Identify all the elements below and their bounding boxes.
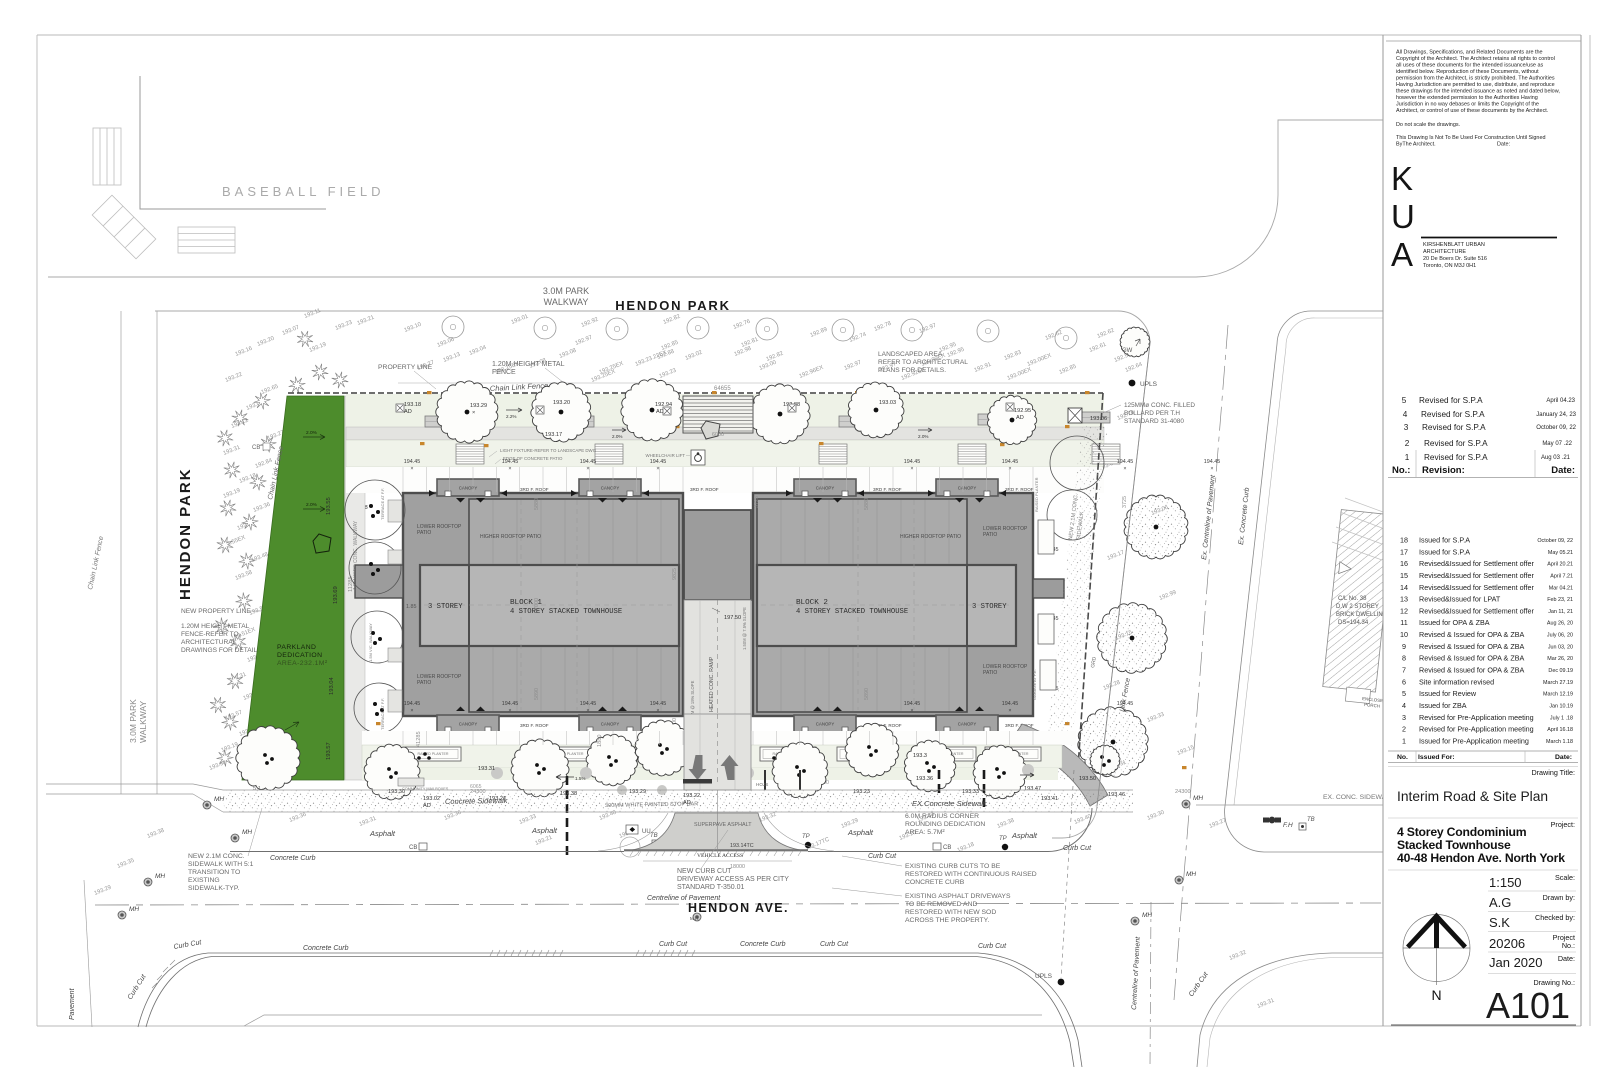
svg-text:RESTORED WITH NEW SOD: RESTORED WITH NEW SOD [905, 909, 996, 916]
svg-text:Scale:: Scale: [1555, 873, 1575, 882]
svg-text:No.:: No.: [1562, 941, 1575, 950]
svg-text:194.45: 194.45 [1204, 459, 1221, 465]
svg-text:×: × [910, 466, 913, 472]
svg-text:Dec 09.19: Dec 09.19 [1548, 668, 1573, 674]
svg-text:193.57: 193.57 [326, 742, 332, 760]
svg-text:×: × [1210, 466, 1213, 472]
svg-text:Curb Cut: Curb Cut [820, 941, 849, 948]
svg-text:6: 6 [1402, 677, 1406, 686]
svg-text:6.0M RADIUS CORNER: 6.0M RADIUS CORNER [905, 813, 979, 820]
svg-text:193.18: 193.18 [404, 402, 421, 408]
svg-text:S.K: S.K [1489, 915, 1510, 930]
svg-text:ACROSS THE PROPERTY.: ACROSS THE PROPERTY. [905, 917, 989, 924]
svg-text:4: 4 [1402, 701, 1406, 710]
svg-text:Project:: Project: [1551, 820, 1575, 829]
svg-text:DRAWINGS FOR DETAIL: DRAWINGS FOR DETAIL [181, 647, 258, 654]
svg-text:NEW PROPERTY LINE: NEW PROPERTY LINE [181, 608, 251, 615]
svg-text:April 16.18: April 16.18 [1547, 727, 1573, 733]
svg-text:5890: 5890 [534, 688, 540, 700]
svg-text:SUPERPAVE ASPHALT: SUPERPAVE ASPHALT [694, 822, 752, 828]
svg-text:3RD F. ROOF: 3RD F. ROOF [690, 487, 719, 492]
svg-text:14: 14 [1400, 583, 1408, 592]
svg-text:HOJS: HOJS [756, 782, 768, 787]
svg-text:Revised for S.P.A: Revised for S.P.A [1419, 396, 1483, 405]
svg-text:193.55: 193.55 [326, 497, 332, 515]
svg-text:SIDEWALK WITH 5:1: SIDEWALK WITH 5:1 [188, 861, 254, 868]
svg-text:Mar 26, 20: Mar 26, 20 [1547, 656, 1573, 662]
svg-text:Revised for Pre-Application me: Revised for Pre-Application meeting [1419, 713, 1534, 722]
svg-text:193.29: 193.29 [470, 403, 487, 409]
svg-text:Having Jurisdiction are permit: Having Jurisdiction are permitted to use… [1396, 82, 1555, 88]
svg-text:MH: MH [1193, 795, 1203, 802]
svg-text:8: 8 [1402, 654, 1406, 663]
svg-text:×: × [1008, 466, 1011, 472]
svg-text:16: 16 [1400, 559, 1408, 568]
svg-text:Mar 04.21: Mar 04.21 [1549, 585, 1573, 591]
svg-text:1:150: 1:150 [1489, 875, 1522, 890]
svg-text:CB: CB [252, 445, 260, 451]
svg-text:194.45: 194.45 [1002, 459, 1019, 465]
svg-text:CANOPY: CANOPY [958, 722, 977, 727]
svg-text:193.04: 193.04 [329, 676, 335, 695]
svg-text:1.5M VIC. WALKWAY: 1.5M VIC. WALKWAY [368, 623, 373, 662]
svg-text:3: 3 [1404, 423, 1409, 432]
svg-text:2.0%: 2.0% [918, 434, 928, 439]
svg-text:BLOCK 2: BLOCK 2 [796, 599, 828, 607]
svg-text:ROUNDING DEDICATION: ROUNDING DEDICATION [905, 821, 985, 828]
svg-text:3RD F. ROOF: 3RD F. ROOF [520, 487, 549, 492]
svg-text:UPLS: UPLS [1140, 381, 1158, 388]
svg-text:F.H: F.H [1283, 822, 1293, 829]
svg-text:194.45: 194.45 [404, 459, 421, 465]
svg-text:PATIO: PATIO [417, 530, 431, 536]
svg-text:all uses of these documents fo: all uses of these documents for the inte… [1396, 63, 1543, 69]
svg-text:May 05.21: May 05.21 [1548, 550, 1573, 556]
svg-text:Revised&Issued for Settlement: Revised&Issued for Settlement offer [1419, 571, 1535, 580]
svg-text:Jan 10.19: Jan 10.19 [1549, 704, 1573, 710]
svg-text:Revised for S.P.A: Revised for S.P.A [1424, 453, 1488, 462]
svg-text:×: × [410, 466, 413, 472]
svg-text:194.45: 194.45 [502, 701, 519, 707]
svg-text:17: 17 [1400, 547, 1408, 556]
svg-text:A101: A101 [1486, 985, 1570, 1026]
svg-text:1.85: 1.85 [406, 604, 417, 610]
svg-text:MH: MH [242, 829, 252, 836]
svg-text:PATIO: PATIO [983, 670, 997, 676]
svg-text:RAISED PLANTER: RAISED PLANTER [1034, 477, 1039, 512]
svg-text:however the extended permissio: however the extended permission to the A… [1396, 95, 1538, 101]
svg-text:3RD F. ROOF: 3RD F. ROOF [873, 487, 902, 492]
svg-text:3 STOREY: 3 STOREY [428, 603, 463, 611]
svg-text:TERRACE AT F.F.: TERRACE AT F.F. [380, 488, 385, 520]
svg-text:Issued for OPA & ZBA: Issued for OPA & ZBA [1419, 618, 1490, 627]
svg-text:Asphalt: Asphalt [847, 828, 874, 837]
svg-text:HENDON PARK: HENDON PARK [177, 467, 194, 600]
svg-text:FENCE-REFER TO: FENCE-REFER TO [181, 631, 239, 638]
svg-text:PATIO: PATIO [417, 680, 431, 686]
svg-text:MH: MH [129, 906, 139, 913]
svg-text:Asphalt: Asphalt [1011, 831, 1038, 840]
svg-text:Jurisdiction in no way debases: Jurisdiction in no way debases or limits… [1396, 102, 1539, 108]
svg-text:41285: 41285 [416, 731, 422, 747]
svg-text:Revised for Pre-Application me: Revised for Pre-Application meeting [1419, 725, 1534, 734]
svg-text:3: 3 [1402, 713, 1406, 722]
svg-text:REFER TO ARCHITECTURAL: REFER TO ARCHITECTURAL [878, 359, 968, 366]
svg-text:EXISTING: EXISTING [188, 877, 220, 884]
svg-text:194.45: 194.45 [650, 701, 667, 707]
svg-text:Jan 2020: Jan 2020 [1489, 955, 1543, 970]
svg-text:Drawing Title:: Drawing Title: [1531, 768, 1575, 777]
svg-text:20206: 20206 [1489, 936, 1525, 951]
svg-text:SIDEWALK-TYP.: SIDEWALK-TYP. [188, 885, 239, 892]
svg-text:Revised&Issued for LPAT: Revised&Issued for LPAT [1419, 595, 1501, 604]
svg-text:Revised & Issued for OPA & ZBA: Revised & Issued for OPA & ZBA [1419, 654, 1525, 663]
svg-text:193.3: 193.3 [913, 753, 927, 759]
svg-text:identified below. Reproductio: identified below. Reproduction of these … [1396, 69, 1539, 75]
svg-text:20 De Boers Dr. Suite 516: 20 De Boers Dr. Suite 516 [1423, 256, 1487, 262]
svg-text:A.G: A.G [1489, 895, 1511, 910]
svg-text:193.36: 193.36 [916, 776, 933, 782]
svg-text:192.95: 192.95 [1014, 408, 1031, 414]
svg-text:1: 1 [1402, 736, 1406, 745]
svg-text:Stacked Townhouse: Stacked Townhouse [1397, 838, 1511, 852]
svg-text:ARCHITECTURE: ARCHITECTURE [1423, 249, 1466, 255]
svg-text:CB: CB [943, 845, 951, 851]
svg-text:CANOPY: CANOPY [816, 722, 835, 727]
svg-text:3.0M PARK: 3.0M PARK [128, 699, 138, 743]
svg-text:4 Storey Condominium: 4 Storey Condominium [1397, 825, 1527, 839]
svg-text:2.0%: 2.0% [306, 502, 318, 508]
svg-text:PROPERTY LINE: PROPERTY LINE [378, 364, 433, 371]
svg-text:BOLLARD PER T.H: BOLLARD PER T.H [1124, 410, 1180, 417]
svg-text:5890: 5890 [864, 688, 870, 700]
svg-text:5: 5 [1402, 396, 1407, 405]
svg-text:TP: TP [802, 834, 810, 840]
svg-text:11: 11 [1400, 618, 1407, 627]
svg-text:6000: 6000 [712, 432, 724, 438]
svg-text:GW: GW [1122, 348, 1133, 354]
svg-text:July 1 .18: July 1 .18 [1550, 715, 1573, 721]
svg-text:5880: 5880 [864, 498, 870, 510]
svg-text:CANOPY: CANOPY [459, 486, 478, 491]
svg-text:Concrete Curb: Concrete Curb [303, 945, 349, 952]
svg-text:BRICK DWELLING: BRICK DWELLING [1336, 612, 1388, 618]
svg-text:MH: MH [155, 873, 165, 880]
svg-text:A: A [1391, 236, 1413, 273]
svg-text:C/L No. 38: C/L No. 38 [1338, 596, 1367, 602]
svg-text:×: × [910, 708, 913, 714]
svg-text:24300: 24300 [1175, 789, 1191, 795]
svg-text:×: × [586, 466, 589, 472]
svg-text:M.H: M.H [690, 916, 698, 921]
svg-text:LIGHT FIXTURE-REFER TO LANDSCA: LIGHT FIXTURE-REFER TO LANDSCAPE DWG [500, 448, 597, 453]
svg-text:194.45: 194.45 [904, 459, 921, 465]
svg-text:197.50: 197.50 [724, 615, 741, 621]
svg-text:×: × [656, 466, 659, 472]
svg-text:Aug 03 .21: Aug 03 .21 [1541, 455, 1571, 461]
svg-text:125MMø CONC. FILLED: 125MMø CONC. FILLED [1124, 402, 1195, 409]
svg-text:194.45: 194.45 [580, 459, 597, 465]
svg-text:Issued For:: Issued For: [1418, 754, 1455, 761]
svg-text:KIRSHENBLATT URBAN: KIRSHENBLATT URBAN [1423, 242, 1485, 248]
svg-text:Revised for S.P.A: Revised for S.P.A [1422, 423, 1486, 432]
svg-text:July 06, 20: July 06, 20 [1547, 633, 1573, 639]
svg-text:RAISED PLANTER: RAISED PLANTER [418, 752, 449, 756]
svg-text:AD: AD [404, 409, 412, 415]
svg-text:9: 9 [1402, 642, 1406, 651]
svg-text:Curb Cut: Curb Cut [659, 941, 688, 948]
svg-text:EXISTING CURB CUTS TO BE: EXISTING CURB CUTS TO BE [905, 863, 1001, 870]
svg-text:TRANSITION TO: TRANSITION TO [188, 869, 240, 876]
svg-text:January 24, 23: January 24, 23 [1536, 412, 1576, 418]
svg-text:D.W 2 STOREY: D.W 2 STOREY [1336, 604, 1379, 610]
svg-text:Curb Cut: Curb Cut [1063, 845, 1092, 852]
svg-text:Revised & Issued for OPA & ZBA: Revised & Issued for OPA & ZBA [1419, 666, 1525, 675]
svg-text:13: 13 [1400, 595, 1408, 604]
svg-text:10: 10 [1400, 630, 1408, 639]
svg-text:Revision:: Revision: [1422, 465, 1465, 476]
svg-text:5: 5 [1402, 689, 1406, 698]
svg-text:Jan 11, 21: Jan 11, 21 [1548, 609, 1573, 615]
svg-text:64655: 64655 [714, 386, 731, 392]
svg-text:HIGHER ROOFTOP PATIO: HIGHER ROOFTOP PATIO [900, 534, 961, 540]
svg-text:MH: MH [1186, 871, 1196, 878]
svg-text:Aug 26, 20: Aug 26, 20 [1547, 621, 1573, 627]
svg-text:12: 12 [1400, 606, 1408, 615]
svg-text:1.20M HEIGHT METAL: 1.20M HEIGHT METAL [492, 361, 565, 368]
svg-text:Toronto, ON M3J 0H1: Toronto, ON M3J 0H1 [1423, 263, 1476, 269]
svg-text:EX.Concrete Sidewalk: EX.Concrete Sidewalk [912, 799, 988, 808]
svg-text:Revised&Issued for Settlement: Revised&Issued for Settlement offer [1419, 583, 1535, 592]
svg-text:193.17: 193.17 [545, 432, 562, 438]
svg-text:194.45: 194.45 [650, 459, 667, 465]
svg-text:AREA-232.1M²: AREA-232.1M² [277, 660, 328, 667]
svg-text:UPLS: UPLS [1035, 973, 1053, 980]
svg-text:2: 2 [1402, 725, 1406, 734]
svg-text:15: 15 [1400, 571, 1408, 580]
svg-text:Date:: Date: [1497, 142, 1510, 148]
svg-text:CANOPY: CANOPY [459, 722, 478, 727]
svg-text:TP: TP [999, 836, 1007, 842]
svg-text:Revised & Issued for OPA & ZBA: Revised & Issued for OPA & ZBA [1419, 642, 1525, 651]
svg-text:4: 4 [1403, 410, 1408, 419]
svg-text:1880: 1880 [597, 735, 603, 747]
svg-text:All Drawings, Specifications,: All Drawings, Specifications, and Relate… [1396, 50, 1543, 56]
svg-text:K: K [1391, 160, 1413, 197]
svg-text:4 STOREY STACKED TOWNHOUSE: 4 STOREY STACKED TOWNHOUSE [796, 608, 908, 616]
svg-text:194.45: 194.45 [904, 701, 921, 707]
svg-text:DS=194.34: DS=194.34 [1338, 620, 1369, 626]
svg-text:193.50: 193.50 [1079, 776, 1096, 782]
svg-text:193.06: 193.06 [1090, 416, 1107, 422]
svg-text:CB: CB [409, 845, 417, 851]
svg-text:PATIO: PATIO [983, 532, 997, 538]
svg-text:ByThe Architect.: ByThe Architect. [1396, 142, 1436, 148]
svg-text:7000: 7000 [534, 598, 540, 610]
svg-text:March 12.19: March 12.19 [1543, 692, 1573, 698]
svg-text:×: × [472, 410, 475, 416]
svg-text:permission from the Architect,: permission from the Architect, is strict… [1396, 76, 1555, 82]
svg-text:9825: 9825 [672, 568, 678, 580]
svg-text:2.2%: 2.2% [506, 414, 516, 419]
svg-text:194.45: 194.45 [404, 701, 421, 707]
svg-text:TB: TB [650, 833, 658, 839]
svg-text:Curb Cut: Curb Cut [978, 943, 1007, 950]
svg-text:×: × [410, 708, 413, 714]
svg-text:HIGHER ROOFTOP PATIO: HIGHER ROOFTOP PATIO [480, 534, 541, 540]
svg-text:NEW CURB CUT: NEW CURB CUT [677, 868, 732, 875]
svg-text:Site information revised: Site information revised [1419, 677, 1494, 686]
svg-text:April 04.23: April 04.23 [1546, 398, 1575, 404]
svg-text:DRIVEWAY ACCESS AS PER CITY: DRIVEWAY ACCESS AS PER CITY [677, 876, 789, 883]
svg-text:Revised & Issued for OPA & ZBA: Revised & Issued for OPA & ZBA [1419, 630, 1525, 639]
svg-text:Revised&Issued for Settlement: Revised&Issued for Settlement offer [1419, 606, 1535, 615]
svg-text:CANOPY: CANOPY [958, 486, 977, 491]
svg-text:1.5%: 1.5% [575, 776, 585, 781]
svg-text:U: U [1391, 198, 1415, 235]
svg-text:5:1: 5:1 [253, 786, 261, 792]
svg-text:AD: AD [1016, 415, 1024, 421]
svg-text:HENDON AVE.: HENDON AVE. [688, 901, 789, 915]
svg-text:WALKWAY: WALKWAY [138, 700, 148, 743]
svg-text:TERRACE AT F.F.: TERRACE AT F.F. [380, 698, 385, 730]
svg-text:1.20M HEIGHT METAL: 1.20M HEIGHT METAL [181, 623, 250, 630]
svg-text:WHEELCHAIR LIFT: WHEELCHAIR LIFT [645, 453, 685, 458]
svg-text:EXISTING ASPHALT DRIVEWAYS: EXISTING ASPHALT DRIVEWAYS [905, 893, 1011, 900]
svg-text:Concrete Curb: Concrete Curb [740, 941, 786, 948]
svg-text:Issued for S.P.A: Issued for S.P.A [1419, 547, 1470, 556]
svg-text:×: × [508, 708, 511, 714]
svg-text:Asphalt: Asphalt [369, 829, 396, 838]
svg-text:6065: 6065 [470, 784, 482, 790]
svg-text:2.0%: 2.0% [612, 434, 622, 439]
svg-text:This Drawing Is Not To Be Used: This Drawing Is Not To Be Used For Const… [1396, 135, 1546, 141]
svg-text:Interim Road & Site Plan: Interim Road & Site Plan [1397, 789, 1548, 804]
svg-text:194.45: 194.45 [502, 459, 519, 465]
svg-text:Feb 23, 21: Feb 23, 21 [1547, 597, 1573, 603]
svg-text:October 09, 22: October 09, 22 [1537, 538, 1573, 544]
svg-text:Revised for S.P.A: Revised for S.P.A [1421, 410, 1485, 419]
svg-text:2: 2 [1405, 439, 1410, 448]
svg-text:MH: MH [214, 796, 224, 803]
svg-text:AREA: 5.7M²: AREA: 5.7M² [905, 829, 945, 836]
svg-text:Concrete Curb: Concrete Curb [270, 855, 316, 862]
svg-text:1.50M @ 7.5% SLOPE: 1.50M @ 7.5% SLOPE [742, 607, 747, 650]
svg-text:Architect, or control of use o: Architect, or control of use of these do… [1396, 108, 1549, 114]
svg-text:5880: 5880 [534, 498, 540, 510]
svg-text:2.0%: 2.0% [306, 430, 318, 436]
svg-text:CANOPY: CANOPY [816, 486, 835, 491]
svg-text:Issued for S.P.A: Issued for S.P.A [1419, 536, 1470, 545]
svg-text:No.: No. [1397, 754, 1408, 761]
svg-text:Drawn by:: Drawn by: [1543, 893, 1575, 902]
svg-text:BASEBALL FIELD: BASEBALL FIELD [222, 184, 384, 199]
svg-text:April 7.21: April 7.21 [1550, 574, 1573, 580]
svg-text:3 STOREY: 3 STOREY [972, 603, 1007, 611]
svg-text:March 1.18: March 1.18 [1546, 739, 1573, 745]
svg-text:194.45: 194.45 [1117, 459, 1134, 465]
svg-text:March 27.19: March 27.19 [1543, 680, 1573, 686]
svg-text:194.45: 194.45 [580, 701, 597, 707]
svg-text:Copyright of the Architect. T: Copyright of the Architect. The Architec… [1396, 56, 1555, 62]
svg-text:TB: TB [1307, 817, 1315, 823]
svg-text:May 07 .22: May 07 .22 [1542, 441, 1572, 447]
svg-text:3725: 3725 [754, 496, 760, 508]
svg-text:NEW 2.1M CONC.: NEW 2.1M CONC. [188, 853, 245, 860]
svg-text:193.03: 193.03 [879, 400, 896, 406]
svg-text:40-48 Hendon Ave. North York: 40-48 Hendon Ave. North York [1397, 851, 1565, 865]
svg-text:CANOPY: CANOPY [601, 722, 620, 727]
svg-text:Date:: Date: [1555, 754, 1572, 761]
svg-text:CANOPY: CANOPY [601, 486, 620, 491]
svg-text:FENCE: FENCE [492, 369, 516, 376]
svg-text:HEATED CONC. RAMP: HEATED CONC. RAMP [709, 656, 715, 712]
svg-text:WALKWAY: WALKWAY [544, 297, 589, 307]
svg-text:these drawings for the intende: these drawings for the intended issuance… [1396, 89, 1560, 95]
svg-text:194.45: 194.45 [1002, 701, 1019, 707]
svg-text:Jun 03, 20: Jun 03, 20 [1548, 644, 1573, 650]
svg-text:Checked by:: Checked by: [1535, 913, 1575, 922]
svg-text:RESTORED WITH CONTINUOUS RAISE: RESTORED WITH CONTINUOUS RAISED [905, 871, 1037, 878]
svg-text:193.69: 193.69 [333, 586, 339, 604]
svg-text:×: × [656, 708, 659, 714]
svg-text:N: N [1431, 987, 1441, 1003]
svg-text:3RD F. ROOF: 3RD F. ROOF [520, 723, 549, 728]
svg-text:3.0M PARK: 3.0M PARK [543, 286, 589, 296]
svg-text:3725: 3725 [1122, 496, 1128, 508]
svg-text:Revised for S.P.A: Revised for S.P.A [1424, 439, 1488, 448]
svg-text:193.14TC: 193.14TC [730, 843, 754, 849]
svg-text:Do not scale the drawings.: Do not scale the drawings. [1396, 122, 1461, 128]
svg-text:193.20: 193.20 [553, 400, 570, 406]
svg-text:3RD F. ROOF: 3RD F. ROOF [1005, 487, 1034, 492]
svg-text:193.31: 193.31 [478, 766, 495, 772]
svg-text:TO BE REMOVED AND: TO BE REMOVED AND [905, 901, 977, 908]
svg-text:PARKLAND: PARKLAND [277, 644, 316, 651]
svg-text:October 09, 22: October 09, 22 [1536, 425, 1576, 431]
svg-text:1: 1 [1405, 453, 1410, 462]
svg-text:4 STOREY STACKED TOWNHOUSE: 4 STOREY STACKED TOWNHOUSE [510, 608, 622, 616]
svg-text:STANDARD T-350.01: STANDARD T-350.01 [677, 884, 745, 891]
svg-text:No.:: No.: [1392, 465, 1410, 476]
svg-text:HENDON PARK: HENDON PARK [615, 298, 731, 313]
svg-text:GARAGE AT F.E.: GARAGE AT F.E. [1032, 669, 1037, 700]
svg-text:×: × [586, 708, 589, 714]
svg-text:DEDICATION: DEDICATION [277, 652, 322, 659]
svg-text:CONCRETE CURB: CONCRETE CURB [905, 879, 965, 886]
svg-text:AD: AD [656, 409, 664, 415]
svg-text:7: 7 [1402, 666, 1406, 675]
svg-text:ARCHITECTURAL: ARCHITECTURAL [181, 639, 237, 646]
svg-text:Concrete Sidewalk: Concrete Sidewalk [445, 796, 509, 806]
svg-text:Revised&Issued for Settlement: Revised&Issued for Settlement offer [1419, 559, 1535, 568]
svg-text:April 20.21: April 20.21 [1547, 562, 1573, 568]
svg-text:Asphalt: Asphalt [531, 826, 558, 835]
svg-text:×: × [508, 466, 511, 472]
svg-text:LANDSCAPED AREA: LANDSCAPED AREA [878, 351, 943, 358]
svg-text:Date:: Date: [1558, 954, 1575, 963]
svg-text:Issued for Review: Issued for Review [1419, 689, 1477, 698]
svg-text:18000: 18000 [730, 864, 745, 870]
svg-text:VEHICLE ACCESS: VEHICLE ACCESS [697, 853, 743, 859]
svg-text:STANDARD 31-4080: STANDARD 31-4080 [1124, 418, 1184, 425]
svg-text:Date:: Date: [1551, 465, 1575, 476]
svg-text:Pavement: Pavement [69, 987, 76, 1020]
svg-text:PLANS FOR DETAILS.: PLANS FOR DETAILS. [878, 367, 946, 374]
svg-text:×: × [1123, 466, 1126, 472]
svg-text:Issued for ZBA: Issued for ZBA [1419, 701, 1467, 710]
svg-text:Curb Cut: Curb Cut [868, 853, 897, 860]
